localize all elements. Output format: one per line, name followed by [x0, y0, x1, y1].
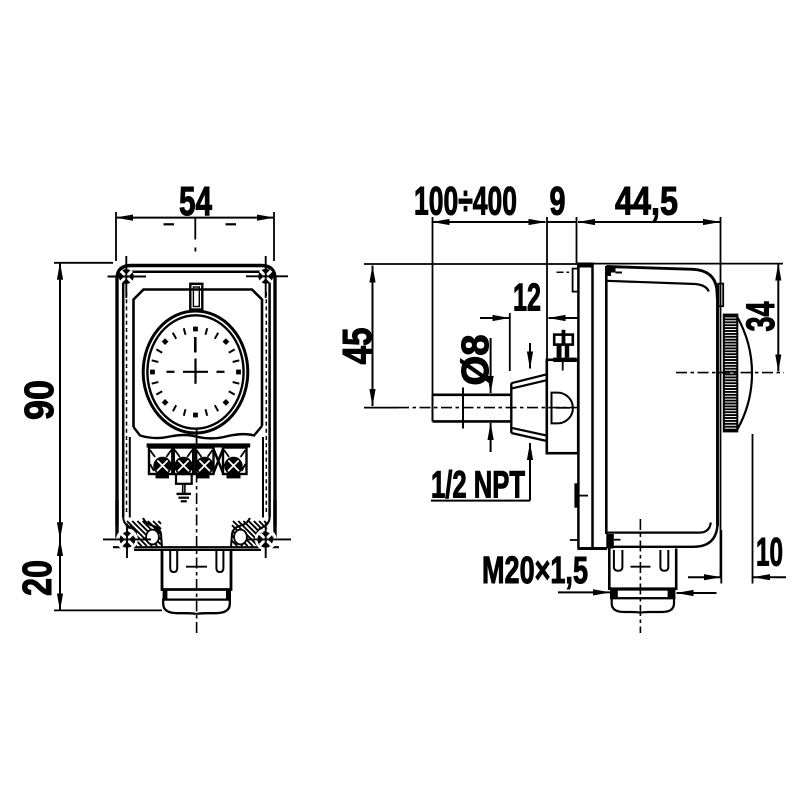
svg-text:20: 20 [14, 560, 60, 596]
svg-text:45: 45 [334, 328, 380, 365]
svg-text:1/2 NPT: 1/2 NPT [431, 465, 525, 507]
svg-text:9: 9 [550, 180, 566, 224]
svg-text:90: 90 [16, 380, 62, 420]
svg-text:54: 54 [179, 178, 212, 224]
svg-text:M20×1,5: M20×1,5 [482, 550, 588, 592]
svg-text:100÷400: 100÷400 [414, 180, 517, 224]
svg-text:12: 12 [513, 277, 541, 320]
svg-text:10: 10 [756, 531, 783, 575]
svg-text:Ø8: Ø8 [455, 335, 497, 386]
svg-text:44,5: 44,5 [615, 180, 678, 224]
svg-text:34: 34 [739, 301, 783, 332]
